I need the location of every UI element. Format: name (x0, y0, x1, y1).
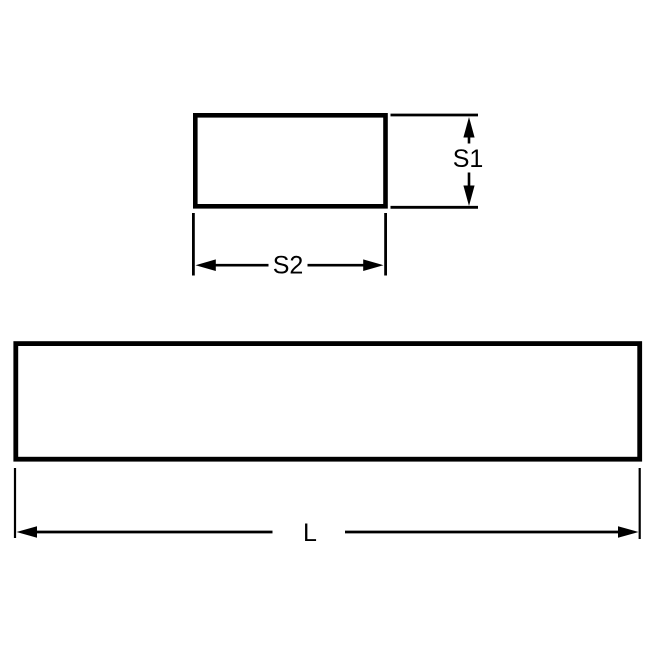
svg-text:S1: S1 (453, 145, 484, 173)
svg-text:S2: S2 (273, 252, 304, 280)
svg-text:L: L (303, 519, 317, 547)
